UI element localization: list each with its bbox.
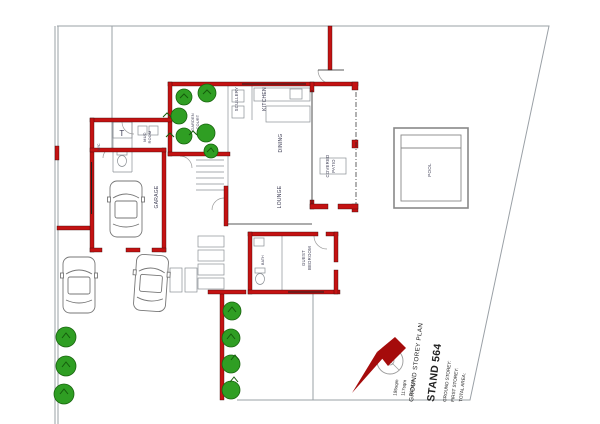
kitchen-island	[266, 106, 310, 122]
toilet-icon	[117, 150, 127, 167]
basin-icon	[254, 238, 264, 246]
stairs-icon	[196, 154, 224, 190]
paving	[170, 236, 224, 292]
label-mud-2: ROOM	[148, 131, 152, 144]
label-geyser: T	[119, 129, 124, 138]
car-icon-driveway-2	[131, 254, 172, 312]
label-dining: DINING	[278, 134, 284, 153]
car-icon-garage	[108, 181, 145, 237]
room-labels: GARAGE LOUNGE DINING KITCHEN SCULLERY CO…	[97, 87, 432, 270]
stand-number: STAND 564	[425, 343, 444, 403]
toilet-icon	[255, 268, 265, 285]
label-scullery: SCULLERY	[234, 87, 239, 112]
label-patio-1: COVERED	[325, 155, 330, 178]
label-guest-1: GUEST	[301, 250, 306, 266]
label-garage: GARAGE	[154, 185, 160, 208]
label-lounge: LOUNGE	[277, 185, 283, 208]
area-label-total: TOTAL AREA:	[458, 373, 467, 402]
label-guest-2: BEDROOM	[307, 246, 312, 270]
label-wc: W/C	[97, 143, 101, 151]
label-mud-1: MUD	[143, 132, 147, 141]
label-kitchen: KITCHEN	[262, 87, 268, 111]
car-icon-driveway-1	[61, 257, 98, 313]
floor-plan-page: GARAGE LOUNGE DINING KITCHEN SCULLERY CO…	[0, 0, 600, 424]
area-value-first: 117sqm	[400, 379, 407, 396]
floor-plan-drawing: GARAGE LOUNGE DINING KITCHEN SCULLERY CO…	[0, 0, 600, 424]
label-court-1: GARDEN	[191, 113, 195, 131]
label-bath: BATH	[261, 255, 265, 265]
title-block: GROUND STOREY PLAN STAND 564 GROUND STOR…	[392, 322, 466, 402]
label-court-2: COURT	[196, 114, 200, 129]
area-value-ground: 195sqm	[392, 379, 399, 396]
label-patio-2: PATIO	[331, 159, 336, 173]
label-pool: POOL	[427, 163, 432, 177]
